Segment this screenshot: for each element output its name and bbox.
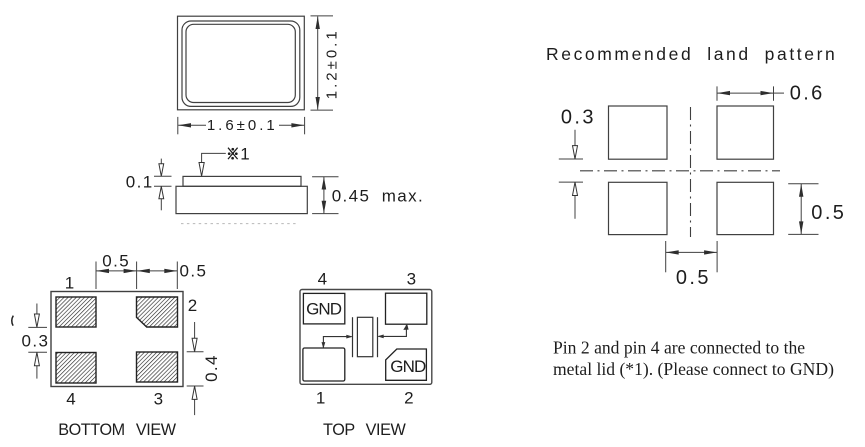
svg-text:1: 1 [316, 389, 325, 408]
svg-text:Pin 2 and pin 4 are connected: Pin 2 and pin 4 are connected to the [553, 338, 805, 358]
svg-text:3: 3 [154, 390, 163, 409]
svg-text:GND: GND [306, 299, 342, 318]
svg-text:1: 1 [240, 145, 251, 164]
svg-text:4: 4 [66, 390, 75, 409]
svg-text:1.2±0.1: 1.2±0.1 [323, 28, 340, 99]
svg-text:1: 1 [65, 274, 74, 293]
svg-text:0.6: 0.6 [790, 83, 825, 105]
svg-text:3: 3 [407, 270, 416, 289]
svg-text:4: 4 [318, 270, 327, 289]
svg-text:1.6±0.1: 1.6±0.1 [207, 117, 278, 134]
svg-text:GND: GND [390, 357, 426, 376]
svg-text:Recommended land pattern: Recommended land pattern [546, 44, 837, 64]
svg-text:0.5: 0.5 [676, 267, 711, 289]
svg-text:0.4: 0.4 [202, 354, 221, 382]
svg-text:2: 2 [404, 389, 413, 408]
svg-text:BOTTOM VIEW: BOTTOM VIEW [58, 421, 177, 439]
svg-text:0.3: 0.3 [22, 332, 50, 351]
svg-text:2: 2 [188, 296, 197, 315]
svg-text:0.45max.: 0.45max. [332, 186, 424, 205]
svg-text:0.1: 0.1 [126, 173, 154, 192]
svg-text:TOP VIEW: TOP VIEW [323, 421, 406, 439]
svg-text:0.5: 0.5 [811, 202, 846, 224]
svg-text:metal lid (*1). (Please connec: metal lid (*1). (Please connect to GND) [553, 359, 834, 379]
svg-text:0.5: 0.5 [180, 262, 208, 281]
svg-text:0.5: 0.5 [102, 252, 130, 271]
svg-text:0.3: 0.3 [561, 106, 596, 128]
